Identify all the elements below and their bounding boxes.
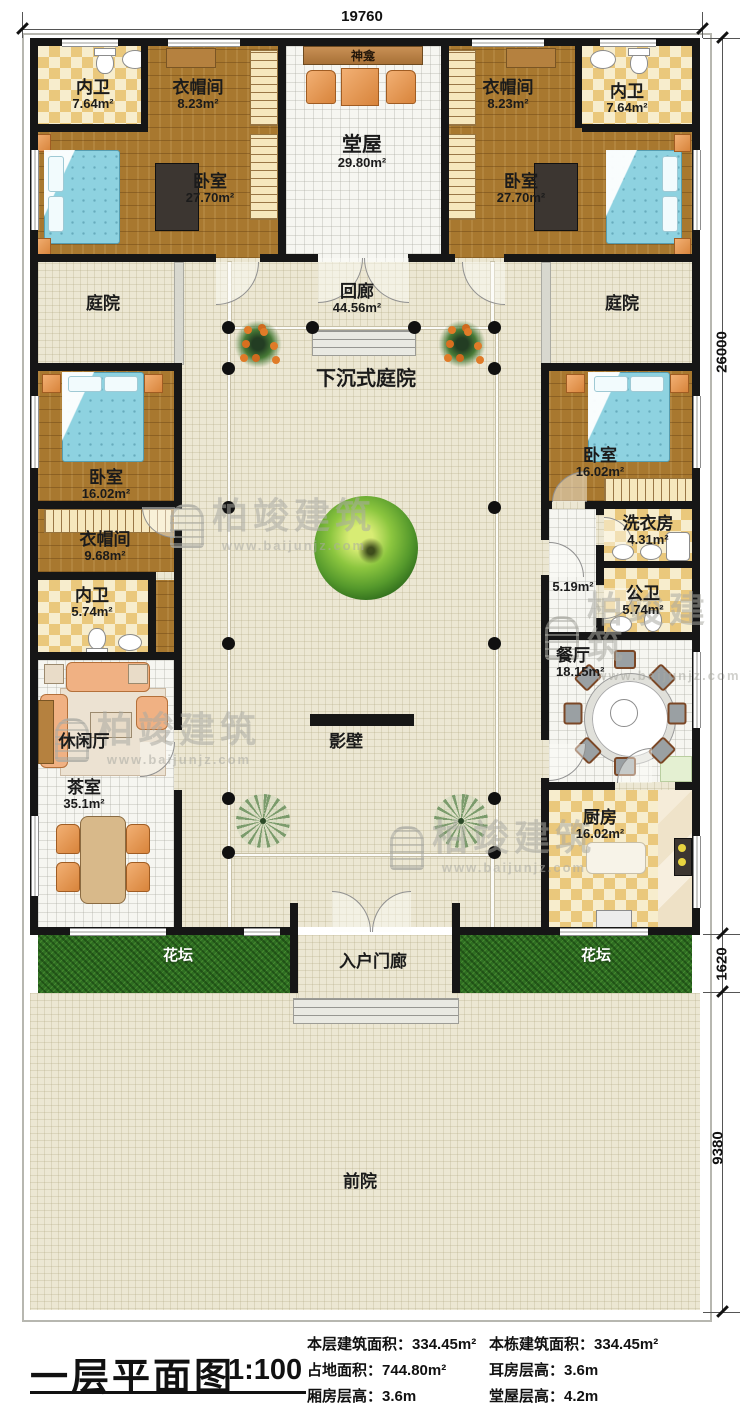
armchair bbox=[136, 696, 168, 730]
room-label-neiwei-ml: 内卫5.74m² bbox=[71, 586, 112, 620]
window bbox=[70, 928, 166, 936]
column-dot bbox=[222, 501, 235, 514]
wall bbox=[675, 782, 700, 790]
dresser bbox=[166, 48, 216, 68]
column-dot bbox=[488, 321, 501, 334]
armchair bbox=[386, 70, 416, 104]
window bbox=[560, 928, 648, 936]
dimension-line-right bbox=[722, 38, 723, 1313]
nightstand bbox=[42, 374, 61, 393]
sink bbox=[118, 634, 142, 651]
wall bbox=[604, 561, 692, 568]
stat-value: 334.45m² bbox=[594, 1336, 658, 1353]
column-dot bbox=[488, 501, 501, 514]
column-dot bbox=[408, 321, 421, 334]
chair bbox=[668, 703, 687, 725]
fern-plant bbox=[434, 794, 488, 848]
wall bbox=[286, 254, 318, 262]
room-label-yingbi: 影壁 bbox=[329, 732, 363, 751]
stat-value: 334.45m² bbox=[412, 1336, 476, 1353]
pillow bbox=[68, 376, 102, 392]
room-label-neiwei-tl: 内卫7.64m² bbox=[72, 78, 113, 112]
room-label-chashi: 茶室35.1m² bbox=[63, 778, 104, 812]
side-table bbox=[128, 664, 148, 684]
stats-left: 本层建筑面积：334.45m² 占地面积：744.80m² 厢房层高：3.6m bbox=[307, 1332, 476, 1410]
wall bbox=[141, 46, 148, 128]
room-label-woshi-mr: 卧室16.02m² bbox=[576, 446, 624, 480]
side-table bbox=[341, 68, 379, 106]
room-label-hallway: 5.19m² bbox=[552, 580, 593, 595]
dresser bbox=[506, 48, 556, 68]
pillow bbox=[104, 376, 138, 392]
column-dot bbox=[488, 362, 501, 375]
column-dot bbox=[222, 321, 235, 334]
room-label-woshi-tr: 卧室27.70m² bbox=[497, 172, 545, 206]
stat-value: 744.80m² bbox=[382, 1362, 446, 1379]
chair bbox=[56, 862, 80, 892]
wall bbox=[148, 580, 156, 660]
wall bbox=[441, 46, 449, 262]
kitchen-sink bbox=[596, 910, 632, 928]
window bbox=[168, 39, 240, 47]
wardrobe bbox=[604, 478, 694, 503]
room-label-yimaojian-tl: 衣帽间8.23m² bbox=[173, 78, 224, 112]
dining-table-center bbox=[610, 699, 638, 727]
walkway-line bbox=[228, 852, 231, 930]
stat-label: 占地面积： bbox=[307, 1362, 382, 1379]
stat-row: 堂屋层高：4.2m bbox=[489, 1384, 658, 1410]
wall bbox=[30, 363, 182, 371]
room-label-xiyifang: 洗衣房4.31m² bbox=[623, 514, 674, 548]
fern-plant bbox=[236, 794, 290, 848]
wall bbox=[541, 575, 549, 740]
room-label-tangwu: 堂屋29.80m² bbox=[338, 134, 386, 171]
column-dot bbox=[488, 637, 501, 650]
column-dot bbox=[222, 362, 235, 375]
shrine: 神龛 bbox=[303, 46, 423, 65]
room-label-xiuxianting: 休闲厅 bbox=[59, 732, 110, 751]
stats-right: 本栋建筑面积：334.45m² 耳房层高：3.6m 堂屋层高：4.2m bbox=[489, 1332, 658, 1410]
wall bbox=[541, 501, 552, 509]
toilet-tank bbox=[94, 48, 116, 56]
pillow bbox=[630, 376, 664, 392]
window bbox=[693, 396, 701, 468]
entrance-steps bbox=[293, 998, 459, 1024]
room-label-woshi-tl: 卧室27.70m² bbox=[186, 172, 234, 206]
dimension-line-top bbox=[22, 29, 702, 30]
dimension-label-frontyard: 9380 bbox=[710, 1131, 727, 1164]
wall bbox=[582, 124, 700, 132]
room-label-neiwei-tr: 内卫7.64m² bbox=[606, 82, 647, 116]
wall bbox=[408, 254, 455, 262]
title-underline bbox=[30, 1391, 306, 1394]
front-yard-floor bbox=[30, 993, 700, 1310]
wall bbox=[290, 903, 298, 993]
wall bbox=[174, 790, 182, 927]
stat-label: 厢房层高： bbox=[307, 1388, 382, 1405]
console-cabinet bbox=[38, 700, 54, 764]
column-dot bbox=[488, 792, 501, 805]
room-label-huatan-l: 花坛 bbox=[163, 948, 193, 965]
wall bbox=[504, 254, 700, 262]
wall bbox=[30, 254, 216, 262]
stat-label: 堂屋层高： bbox=[489, 1388, 564, 1405]
cloak-ml-strip bbox=[156, 580, 174, 660]
wall bbox=[541, 778, 549, 927]
wall bbox=[174, 660, 182, 730]
room-label-yimaojian-tr: 衣帽间8.23m² bbox=[483, 78, 534, 112]
armchair bbox=[306, 70, 336, 104]
chair bbox=[126, 862, 150, 892]
floor-plan: 神龛 bbox=[0, 0, 750, 1410]
burner bbox=[678, 844, 686, 852]
pillow bbox=[48, 156, 64, 192]
window bbox=[693, 652, 701, 728]
room-label-qianyuan: 前院 bbox=[343, 1172, 377, 1191]
stat-row: 耳房层高：3.6m bbox=[489, 1358, 658, 1384]
column-dot bbox=[222, 637, 235, 650]
window bbox=[62, 39, 118, 47]
window bbox=[472, 39, 544, 47]
room-label-gongwei: 公卫5.74m² bbox=[622, 584, 663, 618]
garden-divider bbox=[174, 262, 184, 365]
room-label-chufang: 厨房16.02m² bbox=[576, 808, 624, 842]
wardrobe bbox=[250, 134, 278, 220]
dimension-label-main: 26000 bbox=[714, 331, 731, 373]
chair bbox=[564, 703, 583, 725]
wardrobe bbox=[448, 134, 476, 220]
room-label-huilang: 回廊44.56m² bbox=[333, 282, 381, 316]
nightstand bbox=[566, 374, 585, 393]
wall bbox=[596, 545, 604, 585]
room-label-huatan-r: 花坛 bbox=[581, 948, 611, 965]
room-label-canting: 餐厅18.15m² bbox=[556, 646, 604, 680]
room-label-sunken-courtyard: 下沉式庭院 bbox=[316, 368, 416, 390]
room-label-rumenlang: 入户门廊 bbox=[339, 952, 407, 971]
wall bbox=[174, 371, 182, 505]
column-dot bbox=[488, 846, 501, 859]
wall bbox=[541, 371, 549, 540]
chair bbox=[126, 824, 150, 854]
toilet bbox=[88, 628, 106, 650]
stat-row: 厢房层高：3.6m bbox=[307, 1384, 476, 1410]
walkway-line bbox=[491, 852, 494, 930]
wall bbox=[174, 530, 182, 660]
wall bbox=[30, 124, 148, 132]
window bbox=[693, 836, 701, 908]
wall bbox=[541, 363, 700, 371]
wall bbox=[596, 618, 604, 632]
plan-scale: 1:100 bbox=[228, 1354, 302, 1387]
stat-row: 占地面积：744.80m² bbox=[307, 1358, 476, 1384]
wall bbox=[260, 254, 286, 262]
nightstand bbox=[144, 374, 163, 393]
stat-label: 耳房层高： bbox=[489, 1362, 564, 1379]
stat-label: 本层建筑面积： bbox=[307, 1336, 412, 1353]
wall bbox=[30, 652, 182, 660]
room-label-yimaojian-ml: 衣帽间9.68m² bbox=[80, 530, 131, 564]
stat-value: 3.6m bbox=[564, 1362, 598, 1379]
pillow bbox=[662, 156, 678, 192]
stat-value: 4.2m bbox=[564, 1388, 598, 1405]
sink bbox=[610, 616, 632, 633]
dimension-label-top: 19760 bbox=[341, 8, 383, 25]
pillow bbox=[594, 376, 628, 392]
chair bbox=[56, 824, 80, 854]
flowerbed-right bbox=[460, 935, 692, 993]
window bbox=[693, 150, 701, 230]
potted-plant bbox=[438, 320, 486, 368]
kitchen-island bbox=[586, 842, 646, 874]
dimension-label-flowerbed: 1620 bbox=[714, 947, 731, 980]
burner bbox=[678, 858, 686, 866]
toilet-tank bbox=[628, 48, 650, 56]
window bbox=[31, 396, 39, 468]
column-dot bbox=[306, 321, 319, 334]
window bbox=[600, 39, 656, 47]
stat-label: 本栋建筑面积： bbox=[489, 1336, 594, 1353]
wall bbox=[278, 46, 286, 262]
nightstand bbox=[670, 374, 689, 393]
screen-wall bbox=[310, 714, 414, 726]
sink bbox=[590, 50, 616, 69]
tree-branches bbox=[340, 520, 396, 576]
wall bbox=[541, 782, 615, 790]
wardrobe bbox=[448, 50, 476, 126]
pillow bbox=[48, 196, 64, 232]
shrine-label: 神龛 bbox=[351, 47, 375, 64]
column-dot bbox=[222, 792, 235, 805]
room-label-woshi-ml: 卧室16.02m² bbox=[82, 468, 130, 502]
wall bbox=[30, 572, 156, 580]
pillow bbox=[662, 196, 678, 232]
room-label-tingyuan-r: 庭院 bbox=[605, 294, 639, 313]
wall bbox=[541, 632, 700, 640]
window bbox=[244, 928, 280, 936]
wall bbox=[575, 46, 582, 128]
stat-row: 本层建筑面积：334.45m² bbox=[307, 1332, 476, 1358]
wall bbox=[585, 501, 700, 509]
stat-value: 3.6m bbox=[382, 1388, 416, 1405]
window bbox=[31, 150, 39, 230]
chair bbox=[614, 650, 636, 669]
wall bbox=[596, 509, 604, 515]
wardrobe bbox=[250, 50, 278, 126]
wall bbox=[452, 903, 460, 993]
room-label-tingyuan-l: 庭院 bbox=[86, 294, 120, 313]
column-dot bbox=[222, 846, 235, 859]
potted-plant bbox=[234, 320, 282, 368]
courtyard-steps bbox=[312, 330, 416, 356]
side-table bbox=[44, 664, 64, 684]
garden-divider bbox=[541, 262, 551, 365]
tea-table bbox=[80, 816, 126, 904]
window bbox=[31, 816, 39, 896]
stat-row: 本栋建筑面积：334.45m² bbox=[489, 1332, 658, 1358]
